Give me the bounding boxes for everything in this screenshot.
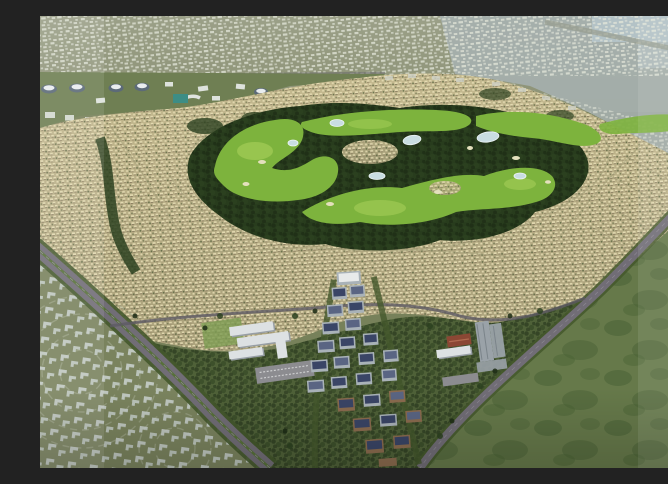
render-canvas xyxy=(40,16,668,468)
aerial-render-image xyxy=(40,16,668,468)
teal-glass-building xyxy=(173,94,188,103)
bottom-vignette xyxy=(40,388,668,468)
